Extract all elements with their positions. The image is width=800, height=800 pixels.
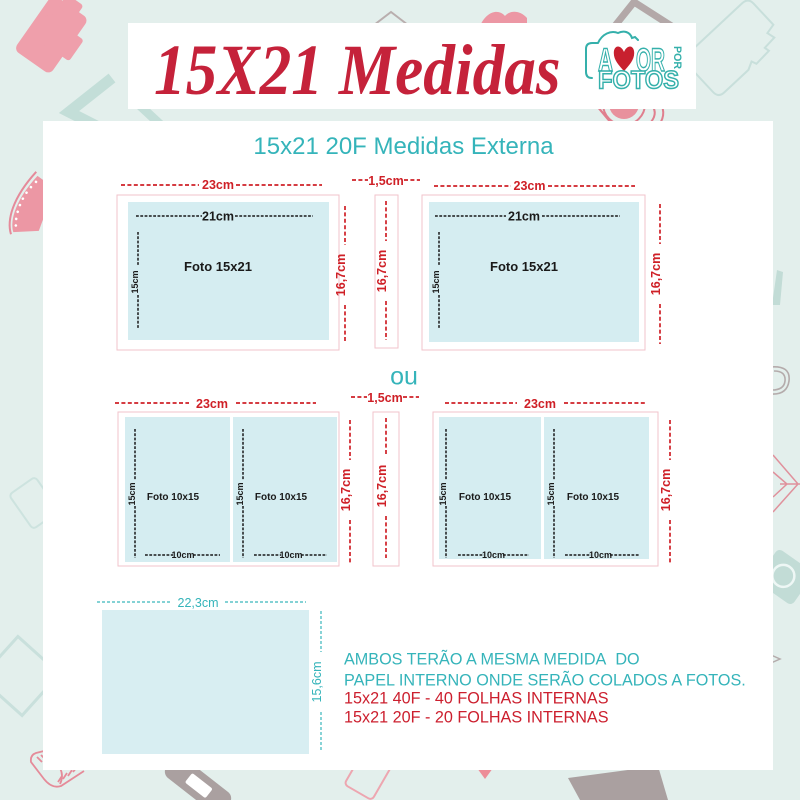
svg-text:Foto 15x21: Foto 15x21 xyxy=(184,259,252,274)
svg-text:16,7cm: 16,7cm xyxy=(649,253,663,295)
svg-text:AMBOS TERÃO A MESMA MEDIDA DO: AMBOS TERÃO A MESMA MEDIDA DO xyxy=(344,649,640,669)
svg-text:23cm: 23cm xyxy=(202,178,234,192)
svg-text:15cm: 15cm xyxy=(431,270,441,293)
svg-text:15,6cm: 15,6cm xyxy=(310,662,324,703)
svg-text:16,7cm: 16,7cm xyxy=(375,250,389,292)
svg-text:Foto 10x15: Foto 10x15 xyxy=(459,492,512,503)
svg-text:16,7cm: 16,7cm xyxy=(334,254,348,296)
svg-text:21cm: 21cm xyxy=(508,210,540,224)
svg-text:10cm: 10cm xyxy=(482,550,505,560)
svg-text:22,3cm: 22,3cm xyxy=(178,596,219,610)
svg-text:Foto 10x15: Foto 10x15 xyxy=(255,492,308,503)
svg-text:15cm: 15cm xyxy=(546,482,556,505)
svg-text:15cm: 15cm xyxy=(127,482,137,505)
svg-text:Foto 10x15: Foto 10x15 xyxy=(147,492,200,503)
svg-text:Foto 15x21: Foto 15x21 xyxy=(490,259,558,274)
svg-text:16,7cm: 16,7cm xyxy=(375,465,389,507)
svg-text:23cm: 23cm xyxy=(524,397,556,411)
svg-text:15x21 40F - 40 FOLHAS INTERNAS: 15x21 40F - 40 FOLHAS INTERNAS xyxy=(344,690,609,708)
svg-text:PAPEL INTERNO ONDE SERÃO COLAD: PAPEL INTERNO ONDE SERÃO COLADOS A FOTOS… xyxy=(344,670,746,690)
svg-text:23cm: 23cm xyxy=(514,179,546,193)
svg-text:1,5cm: 1,5cm xyxy=(368,174,403,188)
svg-text:10cm: 10cm xyxy=(279,550,302,560)
svg-text:15cm: 15cm xyxy=(438,482,448,505)
svg-text:16,7cm: 16,7cm xyxy=(339,469,353,511)
svg-text:15cm: 15cm xyxy=(235,482,245,505)
svg-text:1,5cm: 1,5cm xyxy=(367,391,402,405)
svg-text:ou: ou xyxy=(390,363,418,391)
svg-text:21cm: 21cm xyxy=(202,210,234,224)
svg-text:Foto 10x15: Foto 10x15 xyxy=(567,492,620,503)
svg-text:10cm: 10cm xyxy=(589,550,612,560)
svg-text:15cm: 15cm xyxy=(130,270,140,293)
svg-text:10cm: 10cm xyxy=(171,550,194,560)
svg-text:15x21 20F - 20 FOLHAS INTERNAS: 15x21 20F - 20 FOLHAS INTERNAS xyxy=(344,709,609,727)
svg-text:23cm: 23cm xyxy=(196,397,228,411)
svg-text:16,7cm: 16,7cm xyxy=(659,469,673,511)
